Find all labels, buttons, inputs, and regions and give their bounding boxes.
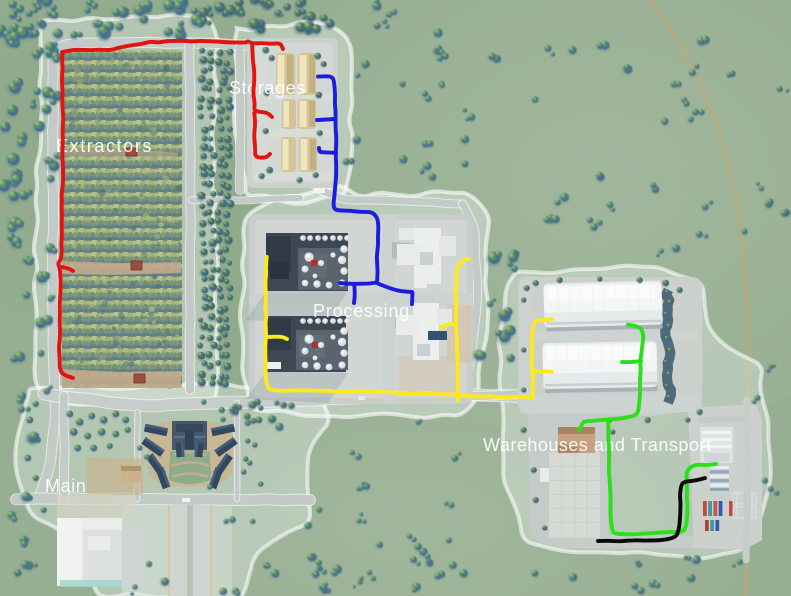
svg-text:Warehouses and Transport: Warehouses and Transport [483, 435, 711, 455]
svg-text:Storages: Storages [229, 78, 306, 98]
svg-text:Processing: Processing [313, 301, 410, 321]
svg-text:Main: Main [45, 476, 86, 496]
svg-text:Extractors: Extractors [56, 136, 153, 156]
